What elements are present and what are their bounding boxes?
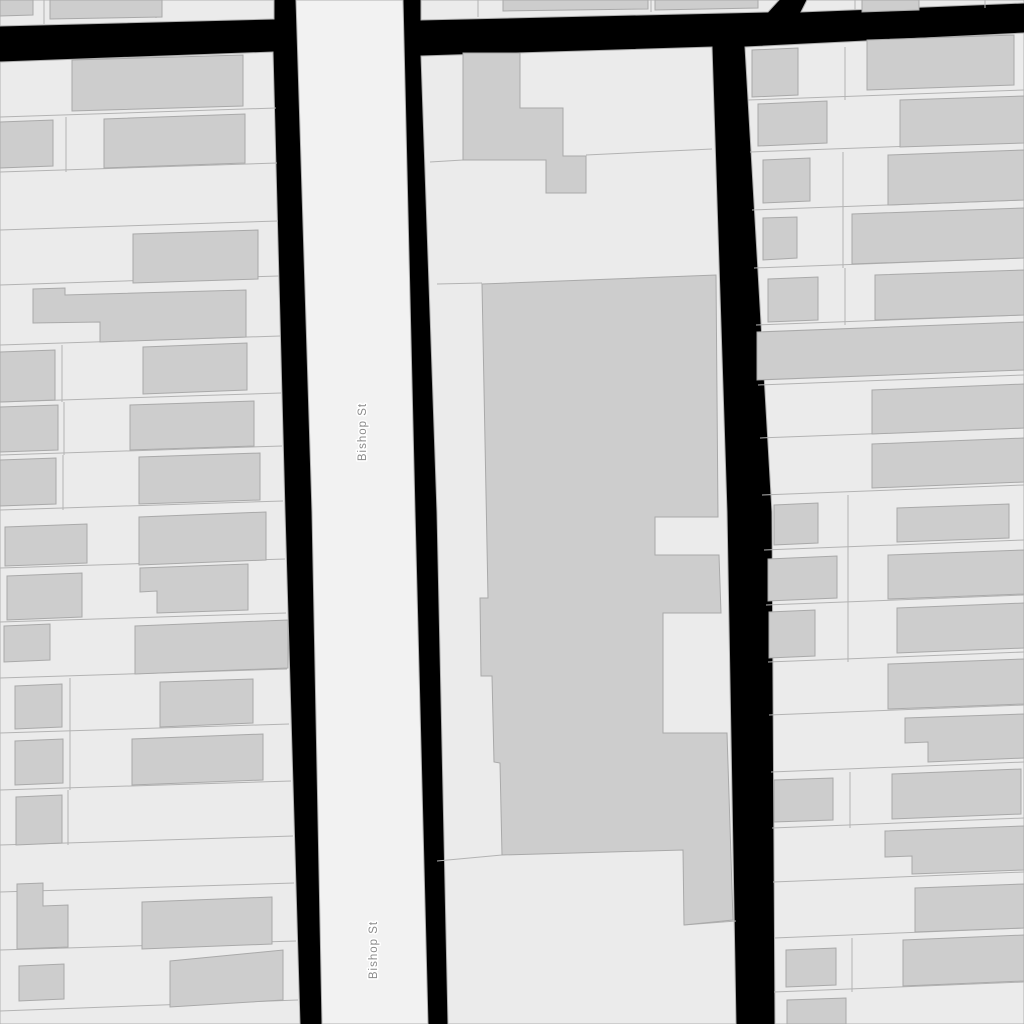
building [888,550,1024,599]
building [15,684,62,729]
building [752,48,798,97]
building [897,504,1009,542]
building [872,438,1024,488]
building [769,610,815,658]
building [0,120,53,168]
building [915,884,1024,932]
building [774,503,818,545]
building [0,405,58,452]
building [133,230,258,283]
building [786,948,836,987]
building [139,453,260,504]
building [872,384,1024,434]
building [888,150,1024,205]
building-large-central [480,275,733,925]
building [903,935,1024,986]
building [655,0,758,10]
building [892,769,1021,819]
building [143,343,247,394]
building [16,795,62,845]
building [19,964,64,1001]
building [763,158,810,203]
building [768,277,818,322]
building [897,603,1024,653]
building [852,208,1024,264]
building [900,96,1024,147]
map-canvas[interactable]: Bishop StBishop St [0,0,1024,1024]
bishop-st-label-lower: Bishop St [368,921,380,979]
building [774,778,833,822]
building [132,734,263,785]
building [130,401,254,450]
building [104,114,245,168]
building [875,270,1024,320]
building [862,0,919,12]
building [139,512,266,565]
building [142,897,272,949]
building [7,573,82,620]
building [503,0,648,11]
building [135,620,288,674]
building [0,458,56,506]
building [867,35,1014,90]
building [787,998,846,1024]
building [50,0,162,19]
building [757,322,1024,380]
building [0,0,33,16]
building [4,624,50,662]
building [0,350,55,402]
building [763,217,797,260]
bishop-st-label-upper: Bishop St [357,403,369,461]
building [15,739,63,785]
building [160,679,253,727]
building [758,101,827,146]
map-viewport[interactable]: Bishop StBishop St [0,0,1024,1024]
building [72,55,243,111]
building [5,524,87,566]
building [888,659,1024,709]
building [768,556,837,601]
